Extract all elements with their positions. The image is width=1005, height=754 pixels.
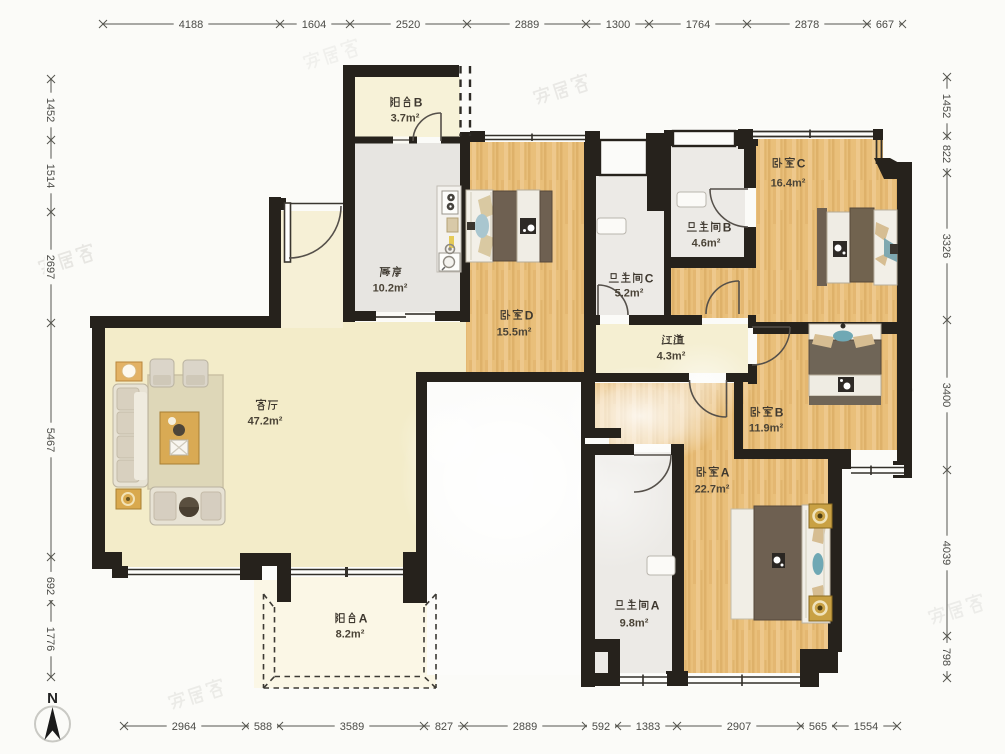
- svg-text:692: 692: [44, 577, 56, 595]
- svg-text:C: C: [797, 157, 806, 171]
- svg-text:B: B: [775, 406, 784, 420]
- svg-text:1300: 1300: [606, 19, 630, 31]
- svg-text:4039: 4039: [940, 541, 952, 565]
- svg-text:22.7m²: 22.7m²: [695, 484, 730, 496]
- svg-text:10.2m²: 10.2m²: [373, 283, 408, 295]
- svg-text:1514: 1514: [44, 164, 56, 188]
- svg-text:2964: 2964: [172, 721, 196, 733]
- svg-text:2889: 2889: [513, 721, 537, 733]
- svg-text:16.4m²: 16.4m²: [771, 178, 806, 190]
- svg-text:A: A: [359, 612, 368, 626]
- svg-text:4188: 4188: [179, 19, 203, 31]
- svg-text:1452: 1452: [940, 94, 952, 118]
- svg-text:5467: 5467: [44, 428, 56, 452]
- svg-text:47.2m²: 47.2m²: [248, 416, 283, 428]
- svg-text:B: B: [723, 221, 732, 235]
- svg-text:4.6m²: 4.6m²: [692, 238, 721, 250]
- svg-text:3400: 3400: [940, 383, 952, 407]
- svg-text:822: 822: [940, 145, 952, 163]
- svg-text:3589: 3589: [340, 721, 364, 733]
- svg-text:B: B: [414, 96, 423, 110]
- svg-text:1383: 1383: [636, 721, 660, 733]
- svg-text:D: D: [525, 309, 534, 323]
- svg-text:C: C: [645, 272, 654, 286]
- svg-text:667: 667: [876, 19, 894, 31]
- svg-text:1554: 1554: [854, 721, 878, 733]
- svg-text:9.8m²: 9.8m²: [620, 618, 649, 630]
- svg-text:1776: 1776: [44, 627, 56, 651]
- svg-text:11.9m²: 11.9m²: [749, 423, 784, 435]
- svg-text:8.2m²: 8.2m²: [336, 629, 365, 641]
- svg-text:2889: 2889: [515, 19, 539, 31]
- svg-text:798: 798: [940, 648, 952, 666]
- svg-text:3326: 3326: [940, 234, 952, 258]
- svg-text:N: N: [47, 690, 58, 707]
- svg-text:1452: 1452: [44, 98, 56, 122]
- svg-text:565: 565: [809, 721, 827, 733]
- svg-text:4.3m²: 4.3m²: [657, 351, 686, 363]
- svg-text:827: 827: [435, 721, 453, 733]
- svg-text:1604: 1604: [302, 19, 326, 31]
- svg-text:2520: 2520: [396, 19, 420, 31]
- svg-text:5.2m²: 5.2m²: [615, 288, 644, 300]
- svg-text:3.7m²: 3.7m²: [391, 113, 420, 125]
- svg-text:A: A: [651, 599, 660, 613]
- svg-text:2697: 2697: [44, 255, 56, 279]
- svg-text:1764: 1764: [686, 19, 710, 31]
- svg-text:A: A: [721, 466, 730, 480]
- svg-text:15.5m²: 15.5m²: [497, 327, 532, 339]
- svg-text:588: 588: [254, 721, 272, 733]
- svg-text:2878: 2878: [795, 19, 819, 31]
- svg-text:592: 592: [592, 721, 610, 733]
- svg-text:2907: 2907: [727, 721, 751, 733]
